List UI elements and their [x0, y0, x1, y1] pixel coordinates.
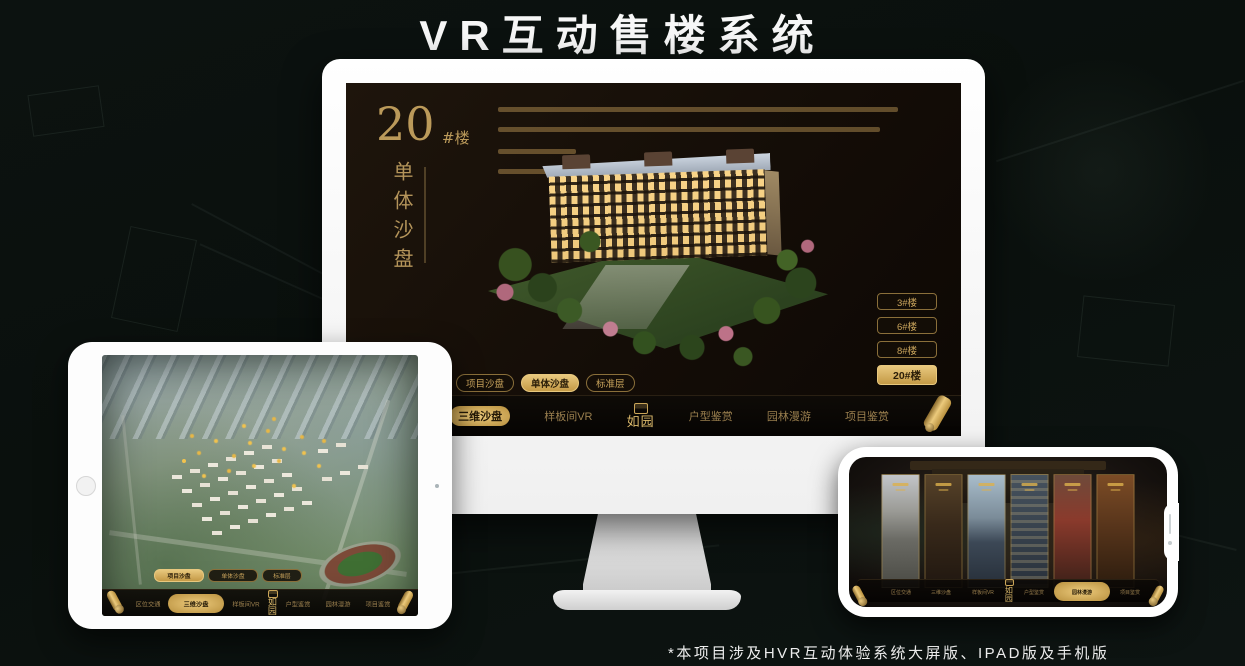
brand-logo-text: 如园: [1005, 587, 1014, 603]
unit-number: 20: [376, 97, 435, 151]
floor-button-8[interactable]: 8#楼: [877, 341, 937, 358]
monitor-base: [553, 590, 741, 610]
ipad-mockup: 项目沙盘 单体沙盘 标准层 区位交通 三维沙盘 样板间VR 如园 户型鉴赏 园林…: [68, 342, 452, 629]
desktop-tab-bar: 项目沙盘 单体沙盘 标准层: [456, 374, 635, 392]
nav-label: 三维沙盘: [184, 598, 209, 607]
nav-label: 园林漫游: [1072, 587, 1092, 595]
seal-icon: [1005, 579, 1014, 586]
nav-item-floorplan[interactable]: 户型鉴赏: [278, 596, 318, 611]
phone-nav-bar: 区位交通 三维沙盘 样板间VR 如园 户型鉴赏 园林漫游 项目鉴赏: [857, 579, 1159, 602]
tab-label: 标准层: [273, 571, 290, 580]
scene-gallery: [882, 474, 1135, 588]
building-3d-render[interactable]: [488, 145, 828, 375]
nav-item-project-view[interactable]: 项目鉴赏: [358, 596, 398, 611]
landscape-trees: [488, 145, 828, 375]
unit-title-vertical: 单体沙盘: [388, 161, 417, 277]
floor-button-6[interactable]: 6#楼: [877, 317, 937, 334]
tab-single-sandtable[interactable]: 单体沙盘: [521, 374, 579, 392]
nav-item-garden-roam[interactable]: 园林漫游: [1054, 582, 1110, 601]
nav-label: 区位交通: [891, 587, 911, 595]
nav-item-floorplan[interactable]: 户型鉴赏: [1014, 584, 1054, 599]
nav-item-showroom-vr[interactable]: 样板间VR: [544, 408, 592, 424]
nav-item-project-view[interactable]: 项目鉴赏: [1110, 584, 1150, 599]
nav-item-3d-sandtable[interactable]: 三维沙盘: [921, 584, 961, 599]
seal-icon: [268, 590, 278, 598]
ipad-screen: 项目沙盘 单体沙盘 标准层 区位交通 三维沙盘 样板间VR 如园 户型鉴赏 园林…: [102, 355, 418, 616]
phone-camera: [1168, 541, 1172, 545]
nav-item-showroom-vr[interactable]: 样板间VR: [961, 584, 1005, 599]
floor-button-group: 3#楼 6#楼 8#楼 20#楼: [877, 293, 937, 385]
nav-item-garden-roam[interactable]: 园林漫游: [318, 596, 358, 611]
monitor-stand: [583, 512, 711, 596]
gallery-panel-amenity[interactable]: [1054, 474, 1092, 588]
footnote-text: *本项目涉及HVR互动体验系统大屏版、IPAD版及手机版: [668, 642, 1109, 663]
brand-logo: 如园: [627, 403, 655, 429]
gallery-panel-exterior-day[interactable]: [968, 474, 1006, 588]
nav-item-3d-sandtable[interactable]: 三维沙盘: [168, 594, 224, 613]
nav-label: 样板间VR: [232, 598, 259, 607]
nav-label: 园林漫游: [326, 598, 351, 607]
nav-item-floorplan[interactable]: 户型鉴赏: [689, 408, 733, 424]
bg-building-outline: [27, 85, 104, 137]
nav-label: 项目鉴赏: [1120, 587, 1140, 595]
gallery-panel-study[interactable]: [1097, 474, 1135, 588]
gallery-panel-lobby[interactable]: [925, 474, 963, 588]
phone-notch: [1164, 503, 1179, 561]
gallery-panel-interior[interactable]: [882, 474, 920, 588]
phone-speaker-slit: [1169, 514, 1171, 534]
nav-label: 区位交通: [136, 598, 161, 607]
bg-building-outline: [1077, 295, 1175, 366]
gallery-panel-building[interactable]: [1011, 474, 1049, 588]
ipad-tab-bar: 项目沙盘 单体沙盘 标准层: [154, 569, 302, 582]
ipad-home-button[interactable]: [76, 476, 96, 496]
nav-label: 三维沙盘: [931, 587, 951, 595]
nav-item-showroom-vr[interactable]: 样板间VR: [224, 596, 268, 611]
brand-logo: 如园: [268, 590, 278, 617]
poster-canvas: VR互动售楼系统 20 #楼 单体沙盘: [0, 0, 1245, 666]
nav-label: 项目鉴赏: [366, 598, 391, 607]
phone-screen: 区位交通 三维沙盘 样板间VR 如园 户型鉴赏 园林漫游 项目鉴赏: [849, 457, 1167, 607]
phone-mockup: 区位交通 三维沙盘 样板间VR 如园 户型鉴赏 园林漫游 项目鉴赏: [838, 447, 1178, 617]
nav-item-3d-sandtable[interactable]: 三维沙盘: [450, 406, 510, 426]
bg-plaque: [111, 226, 197, 332]
ipad-camera: [435, 484, 439, 488]
description-line: [498, 107, 898, 112]
nav-item-location[interactable]: 区位交通: [128, 596, 168, 611]
nav-item-location[interactable]: 区位交通: [881, 584, 921, 599]
tab-project-sandtable[interactable]: 项目沙盘: [154, 569, 204, 582]
unit-number-suffix: #楼: [442, 127, 470, 148]
tab-standard-floor[interactable]: 标准层: [586, 374, 635, 392]
tab-label: 项目沙盘: [167, 571, 190, 580]
brand-logo-text: 如园: [268, 599, 278, 617]
tab-project-sandtable[interactable]: 项目沙盘: [456, 374, 514, 392]
nav-label: 样板间VR: [972, 587, 994, 595]
nav-label: 户型鉴赏: [286, 598, 311, 607]
nav-item-project-view[interactable]: 项目鉴赏: [845, 408, 889, 424]
floor-button-20[interactable]: 20#楼: [877, 365, 937, 385]
brand-logo-text: 如园: [627, 416, 655, 429]
nav-item-garden-roam[interactable]: 园林漫游: [767, 408, 811, 424]
unit-title-divider: [424, 167, 426, 263]
bg-glow: [980, 60, 1220, 280]
tab-standard-floor[interactable]: 标准层: [262, 569, 302, 582]
floor-button-3[interactable]: 3#楼: [877, 293, 937, 310]
ipad-nav-bar: 区位交通 三维沙盘 样板间VR 如园 户型鉴赏 园林漫游 项目鉴赏: [102, 589, 418, 616]
page-title: VR互动售楼系统: [0, 2, 1245, 63]
description-line: [498, 127, 880, 132]
brand-logo: 如园: [1005, 579, 1014, 603]
seal-icon: [634, 403, 648, 414]
nav-label: 户型鉴赏: [1024, 587, 1044, 595]
tab-label: 单体沙盘: [221, 571, 244, 580]
tab-single-sandtable[interactable]: 单体沙盘: [208, 569, 258, 582]
